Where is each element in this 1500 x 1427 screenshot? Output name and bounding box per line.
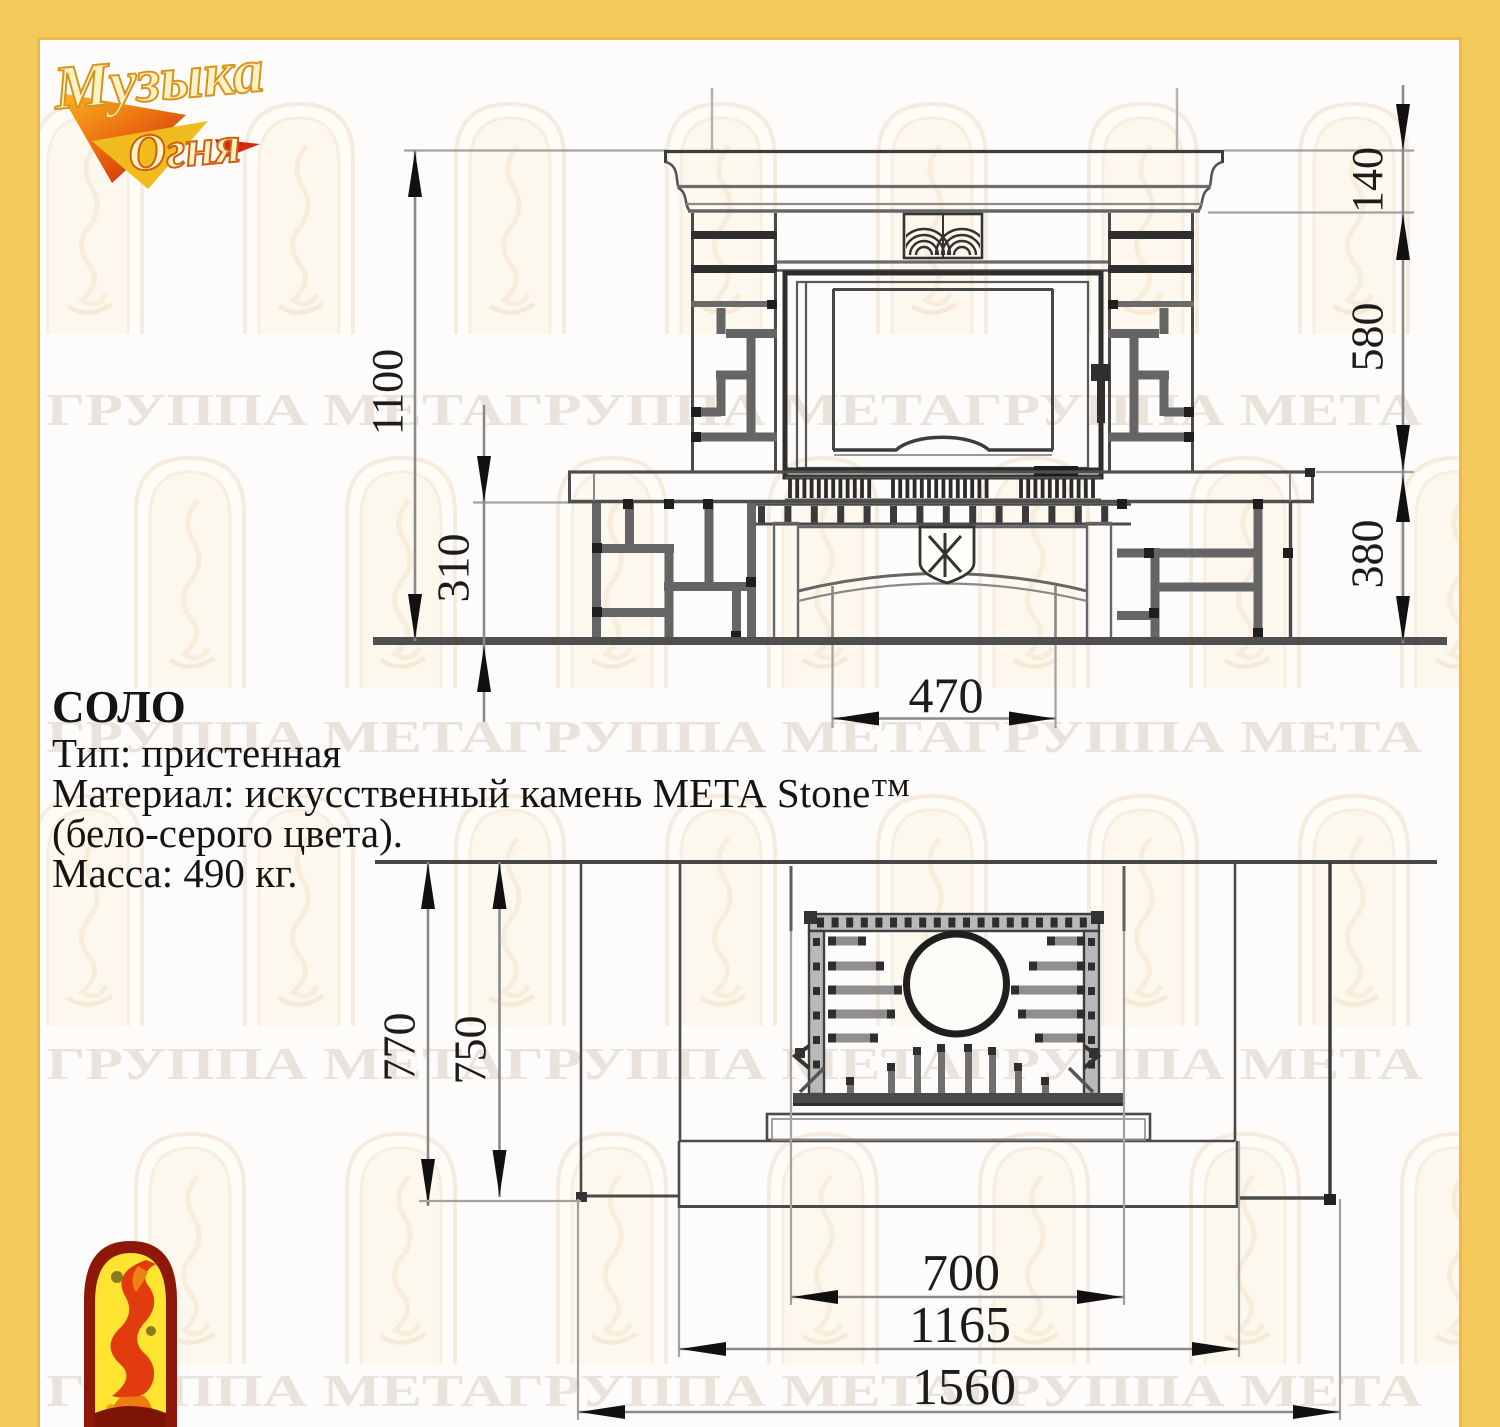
svg-text:1560: 1560 xyxy=(912,1359,1016,1416)
svg-text:ГРУППА МЕТАГРУППА МЕТАГРУППА М: ГРУППА МЕТАГРУППА МЕТАГРУППА МЕТА xyxy=(46,1038,1422,1089)
svg-text:380: 380 xyxy=(1342,520,1393,589)
svg-text:470: 470 xyxy=(909,667,984,723)
svg-text:ГРУППА МЕТАГРУППА МЕТАГРУППА М: ГРУППА МЕТАГРУППА МЕТАГРУППА МЕТА xyxy=(46,1365,1422,1416)
svg-text:700: 700 xyxy=(922,1245,1000,1302)
svg-text:140: 140 xyxy=(1343,147,1392,213)
svg-text:580: 580 xyxy=(1342,303,1393,372)
svg-text:ГРУППА МЕТАГРУППА МЕТАГРУППА М: ГРУППА МЕТАГРУППА МЕТАГРУППА МЕТА xyxy=(46,384,1422,435)
svg-text:750: 750 xyxy=(445,1016,496,1085)
svg-text:Огня: Огня xyxy=(126,116,243,183)
svg-text:770: 770 xyxy=(374,1013,425,1082)
svg-text:1165: 1165 xyxy=(909,1297,1011,1354)
svg-text:Масса: 490 кг.: Масса: 490 кг. xyxy=(52,850,298,896)
svg-text:310: 310 xyxy=(428,534,479,603)
svg-text:1100: 1100 xyxy=(363,349,412,435)
svg-text:СОЛО: СОЛО xyxy=(52,682,186,732)
